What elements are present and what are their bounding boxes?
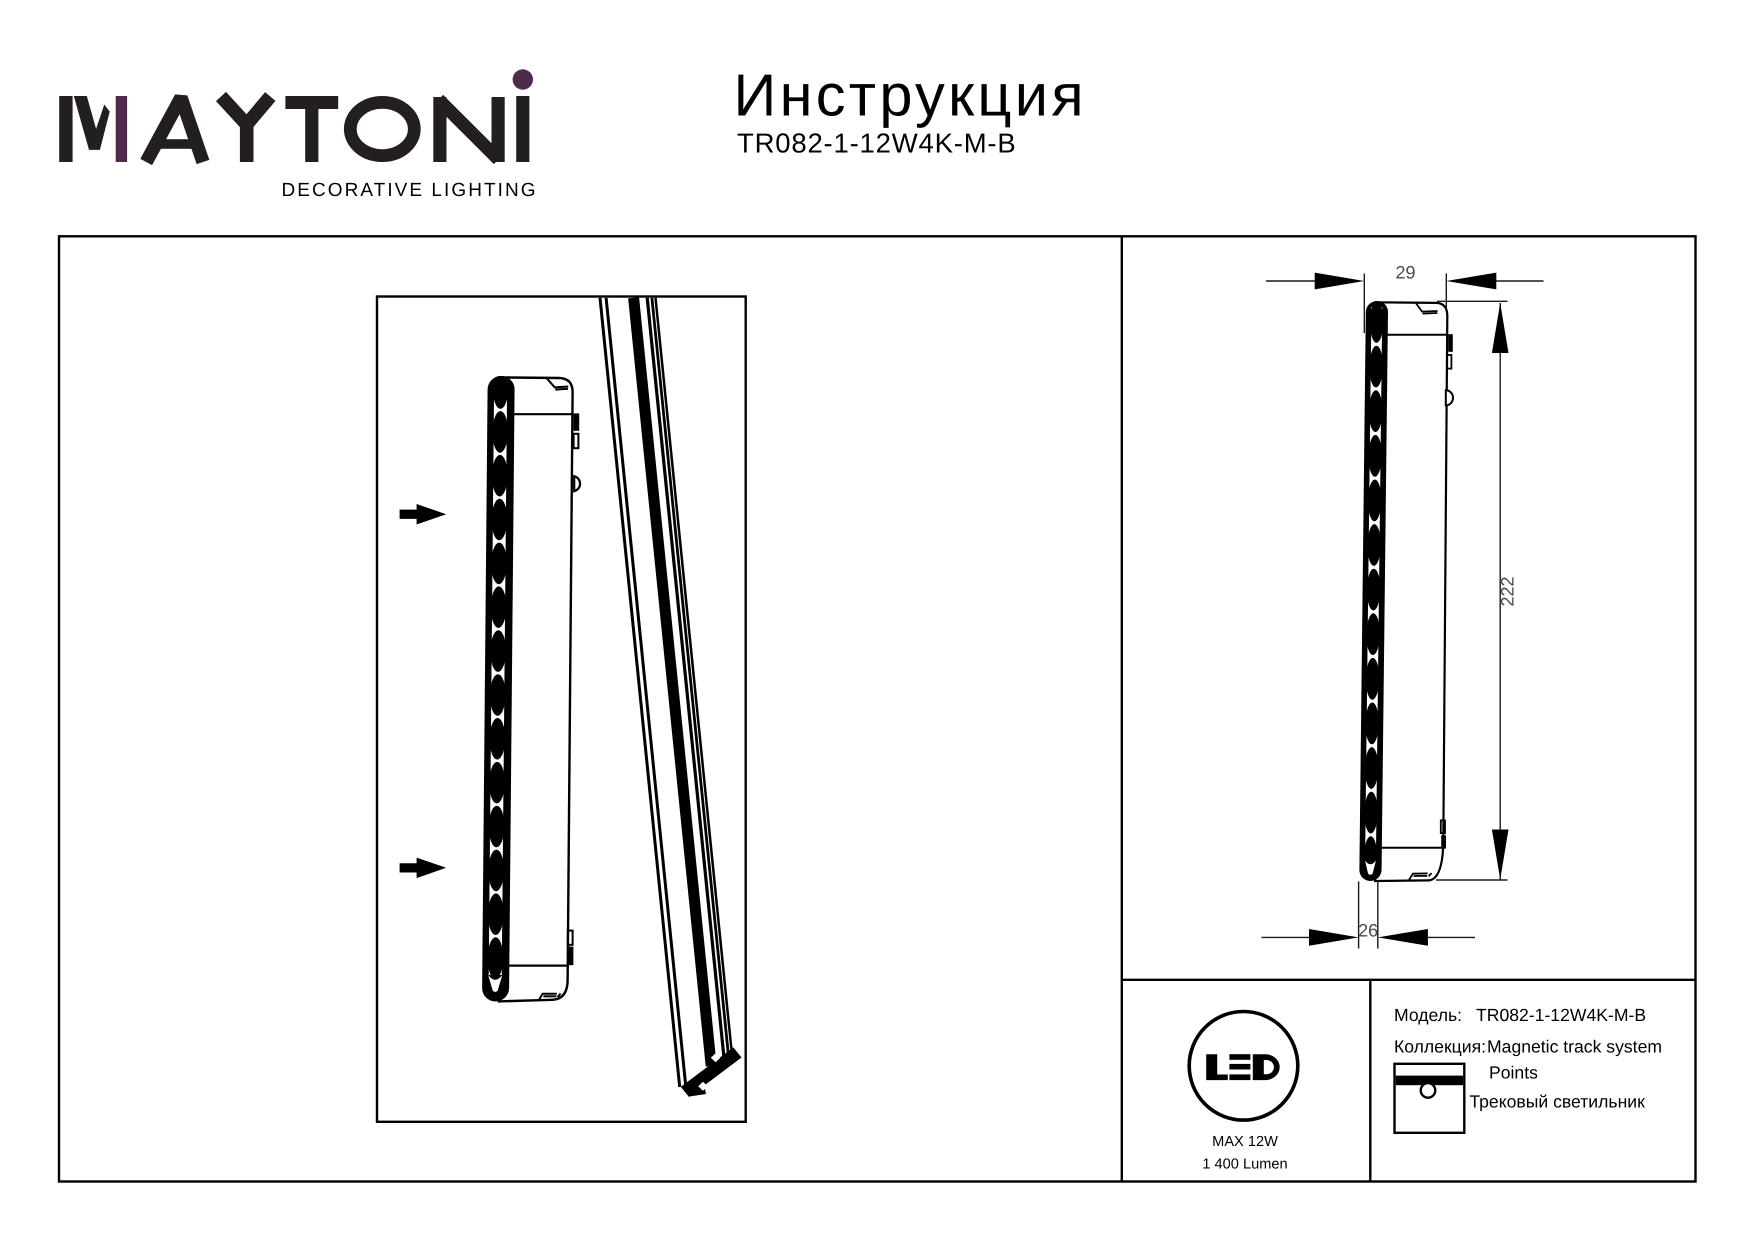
svg-text:Коллекция:: Коллекция: [1394, 1037, 1486, 1057]
svg-text:MAX 12W: MAX 12W [1212, 1134, 1278, 1150]
svg-text:TR082-1-12W4K-M-B: TR082-1-12W4K-M-B [1476, 1005, 1646, 1025]
svg-text:Трековый светильник: Трековый светильник [1469, 1092, 1645, 1112]
svg-text:DECORATIVE LIGHTING: DECORATIVE LIGHTING [282, 180, 538, 201]
svg-text:26: 26 [1358, 921, 1378, 941]
svg-text:222: 222 [1498, 576, 1518, 606]
svg-text:Инструкция: Инструкция [734, 62, 1087, 129]
svg-text:Points: Points [1489, 1062, 1538, 1082]
svg-text:Модель:: Модель: [1394, 1005, 1462, 1025]
svg-text:1 400 Lumen: 1 400 Lumen [1202, 1157, 1287, 1173]
svg-text:29: 29 [1395, 262, 1415, 282]
svg-text:Magnetic track system: Magnetic track system [1487, 1037, 1662, 1057]
svg-text:TR082-1-12W4K-M-B: TR082-1-12W4K-M-B [737, 128, 1017, 159]
